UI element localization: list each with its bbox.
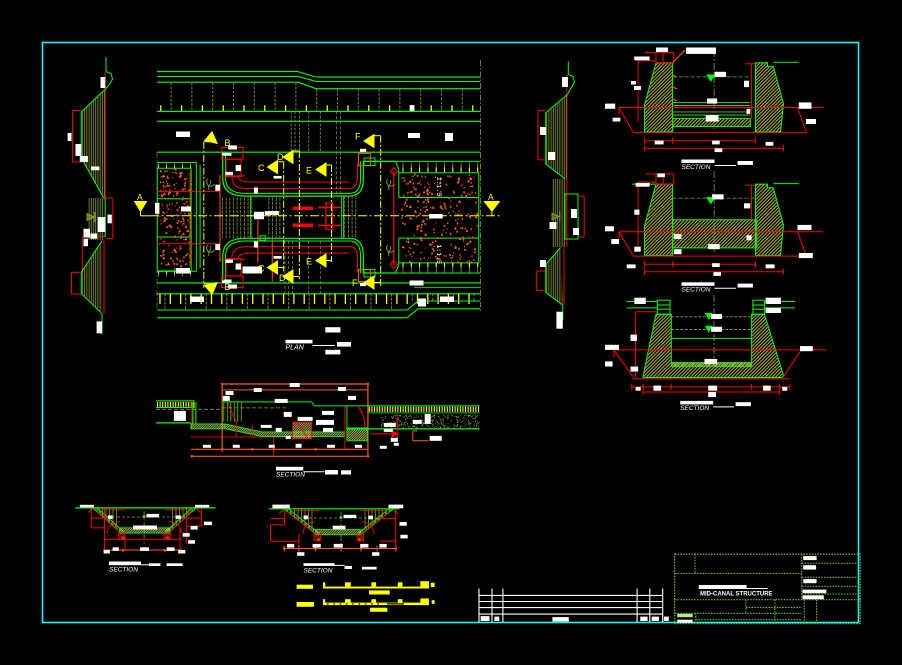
svg-text:SECTION: SECTION [304, 567, 333, 574]
svg-text:SECTION: SECTION [109, 566, 138, 573]
svg-text:F: F [352, 278, 358, 288]
svg-text:D: D [279, 273, 286, 283]
svg-text:C: C [258, 163, 265, 173]
svg-text:1:1.5: 1:1.5 [435, 244, 442, 264]
svg-text:E: E [306, 166, 312, 176]
svg-text:D: D [277, 152, 284, 162]
svg-text:1:1.5: 1:1.5 [435, 177, 442, 197]
svg-text:SECTION: SECTION [682, 287, 711, 294]
svg-text:A: A [137, 192, 143, 202]
svg-text:F: F [355, 132, 361, 142]
svg-text:SECTION: SECTION [682, 164, 711, 171]
svg-text:MID-CANAL STRUCTURE: MID-CANAL STRUCTURE [700, 591, 773, 597]
svg-text:SECTION: SECTION [276, 472, 305, 479]
svg-text:A: A [488, 192, 494, 202]
svg-text:PLAN: PLAN [286, 345, 305, 352]
svg-text:SECTION: SECTION [680, 405, 709, 412]
svg-text:E: E [306, 257, 312, 267]
